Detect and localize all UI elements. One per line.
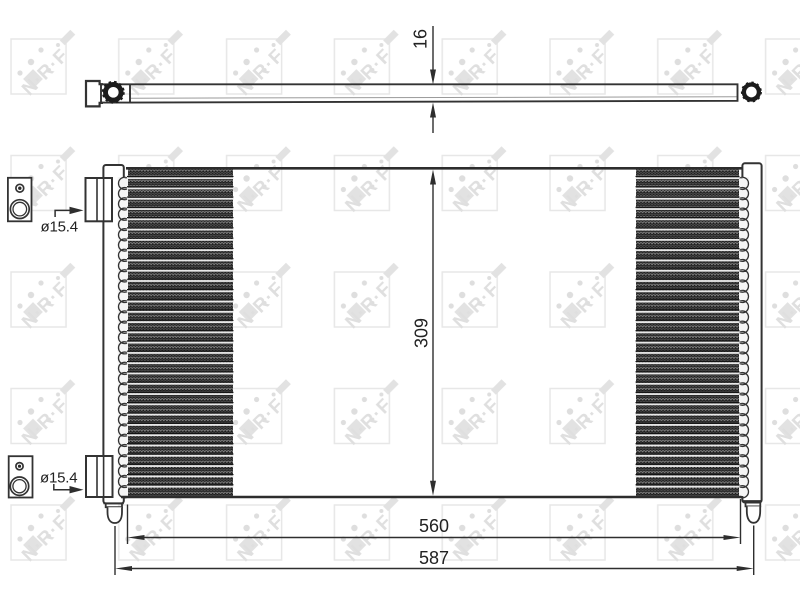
svg-text:ø15.4: ø15.4: [40, 470, 77, 487]
svg-text:587: 587: [419, 548, 449, 568]
svg-text:309: 309: [412, 318, 432, 348]
svg-text:ø15.4: ø15.4: [41, 219, 78, 236]
svg-text:16: 16: [411, 29, 431, 49]
svg-text:560: 560: [419, 516, 449, 536]
